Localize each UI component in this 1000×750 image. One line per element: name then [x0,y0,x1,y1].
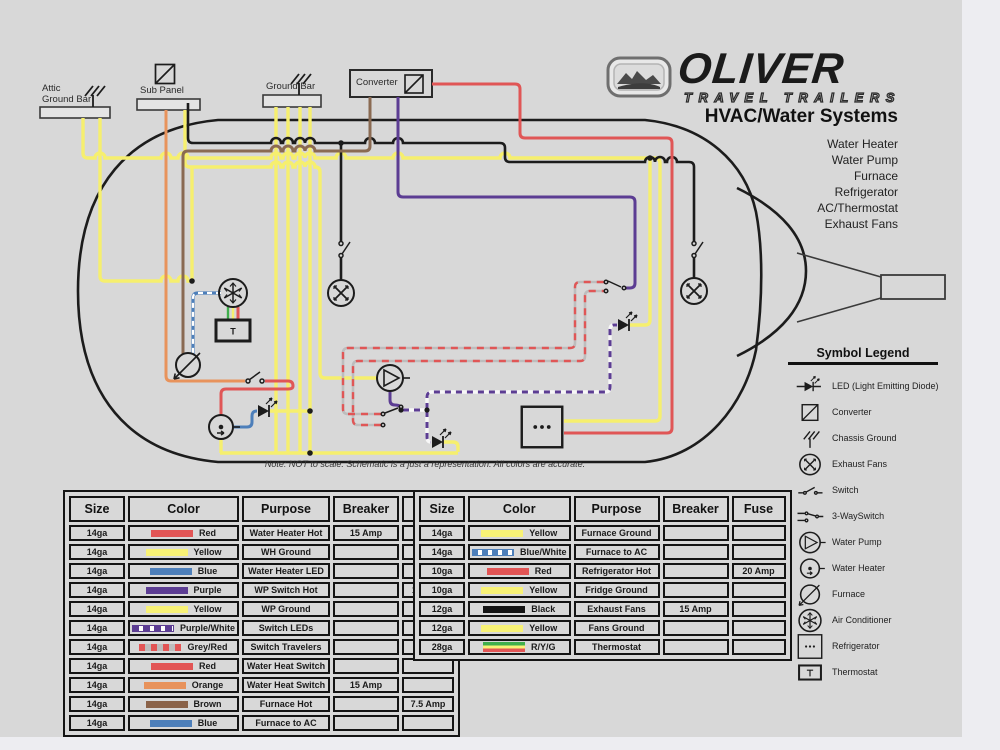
breaker-cell [333,658,399,674]
fuse-cell [732,601,786,617]
thermostat-icon [790,660,830,685]
pump-icon [790,530,830,555]
brand-name: OLIVER [675,45,846,94]
table-row: 14gaYellowWP Ground [69,601,454,617]
purpose-cell: Fans Ground [574,620,660,636]
wire-table-left: SizeColorPurposeBreakerFuse14gaRedWater … [63,490,460,737]
color-cell: Yellow [128,601,239,617]
color-cell: Black [468,601,571,617]
exhaust-fan-icon [681,278,707,304]
wire-color-name: Red [199,661,216,671]
breaker-cell [333,639,399,655]
wire-color-swatch [139,644,181,651]
fuse-cell [402,677,454,693]
wire-color-swatch [146,606,188,613]
size-cell: 12ga [419,601,465,617]
purpose-cell: Switch Travelers [242,639,330,655]
wire-color-swatch [146,549,188,556]
wire-color-name: Yellow [194,547,222,557]
color-cell: Yellow [468,525,571,541]
purpose-cell: Furnace Ground [574,525,660,541]
table-row: 14gaBrownFurnace Hot7.5 Amp [69,696,454,712]
water-pump-icon [377,365,410,391]
wire-color-swatch [150,568,192,575]
attic-ground-bar [40,107,110,118]
breaker-cell: 15 Amp [333,525,399,541]
color-cell: R/Y/G [468,639,571,655]
table-row: 14gaRedWater Heat Switch [69,658,454,674]
legend-divider [788,362,938,365]
purpose-cell: Water Heater LED [242,563,330,579]
breaker-cell [663,563,729,579]
color-cell: Purple/White [128,620,239,636]
table-row: 14gaBlue/WhiteFurnace to AC [419,544,786,560]
breaker-cell [663,582,729,598]
page-title: HVAC/Water Systems [580,106,898,128]
waterheater-icon [790,556,830,581]
wire-color-swatch [132,625,174,632]
legend-item-label: Converter [832,407,872,417]
converter-label: Converter [356,78,398,89]
wire-color-swatch [481,625,523,632]
size-cell: 14ga [69,544,125,560]
size-cell: 28ga [419,639,465,655]
breaker-cell [333,620,399,636]
color-cell: Orange [128,677,239,693]
ground-icon [790,426,830,451]
fuse-cell: 20 Amp [732,563,786,579]
table-row: 28gaR/Y/GThermostat [419,639,786,655]
color-cell: Blue [128,715,239,731]
fuse-cell [732,525,786,541]
color-cell: Yellow [468,582,571,598]
attic-ground-bar-label: Attic Ground Bar [42,84,91,105]
ground-bar [263,95,321,107]
color-cell: Blue/White [468,544,571,560]
breaker-cell [333,582,399,598]
table-row: 14gaBlueFurnace to AC [69,715,454,731]
wire-table-right: SizeColorPurposeBreakerFuse14gaYellowFur… [413,490,792,661]
wire-color-name: Blue/White [520,547,567,557]
size-cell: 14ga [69,639,125,655]
size-cell: 14ga [69,715,125,731]
fridge-icon [790,634,830,659]
led-icon [432,429,451,448]
ground-bar-label: Ground Bar [266,82,315,93]
legend-item: Furnace [788,581,988,607]
purpose-cell: Furnace to AC [242,715,330,731]
wire-color-swatch [146,701,188,708]
wire-color-name: Red [199,528,216,538]
sub-panel-icon [156,65,175,84]
table-row: 14gaRedWater Heater Hot15 Amp [69,525,454,541]
column-header: Breaker [663,496,729,522]
wire-color-name: Yellow [529,585,557,595]
color-cell: Grey/Red [128,639,239,655]
size-cell: 14ga [69,582,125,598]
top-fixtures [40,65,432,119]
purpose-cell: WH Ground [242,544,330,560]
table-row: 14gaYellowFurnace Ground [419,525,786,541]
wire-color-swatch [151,663,193,670]
wire-color-name: Purple/White [180,623,235,633]
size-cell: 10ga [419,563,465,579]
legend-item: Water Pump [788,529,988,555]
breaker-cell [663,544,729,560]
blue-wire-water-heater-led [233,411,257,427]
legend-item: Refrigerator [788,633,988,659]
legend-item-label: Refrigerator [832,641,880,651]
color-cell: Red [128,525,239,541]
legend-item-label: Switch [832,485,859,495]
system-item: Water Heater [580,136,898,152]
column-header: Size [419,496,465,522]
grey-red-wires-switch-travelers [343,282,604,425]
breaker-cell [333,715,399,731]
schematic-sheet: T Attic Ground Bar Sub Panel Ground Bar … [0,0,962,737]
wire-color-name: Purple [194,585,222,595]
table-row: 14gaPurpleWP Switch Hot15 Amp [69,582,454,598]
refrigerator-icon [522,407,563,448]
system-item: Water Pump [580,152,898,168]
led-icon [618,312,637,331]
system-item: Exhaust Fans [580,216,898,232]
color-cell: Purple [128,582,239,598]
breaker-cell [663,639,729,655]
wire-color-swatch [481,530,523,537]
purpose-cell: Furnace to AC [574,544,660,560]
systems-list: Water HeaterWater PumpFurnaceRefrigerato… [580,136,898,232]
purpose-cell: Fridge Ground [574,582,660,598]
breaker-cell [333,563,399,579]
column-header: Purpose [242,496,330,522]
purpose-cell: Refrigerator Hot [574,563,660,579]
wire-color-name: Yellow [194,604,222,614]
led-icon [258,398,277,417]
color-cell: Yellow [468,620,571,636]
symbol-legend: Symbol Legend LED (Light Emitting Diode)… [788,346,988,685]
wire-color-swatch [487,568,529,575]
wire-color-name: Yellow [529,528,557,538]
logo-emblem [606,56,672,103]
water-heater-icon [209,415,240,439]
legend-item: Converter [788,399,988,425]
table-row: 14gaGrey/RedSwitch Travelers [69,639,454,655]
wire-color-swatch [151,530,193,537]
size-cell: 14ga [419,525,465,541]
wire-color-swatch [483,642,525,652]
purpose-cell: Water Heater Hot [242,525,330,541]
legend-item: Chassis Ground [788,425,988,451]
breaker-cell: 15 Amp [333,677,399,693]
color-cell: Brown [128,696,239,712]
purpose-cell: WP Ground [242,601,330,617]
size-cell: 14ga [69,563,125,579]
wire-color-swatch [150,720,192,727]
page: T Attic Ground Bar Sub Panel Ground Bar … [0,0,1000,750]
brand-tagline: TRAVEL TRAILERS [684,90,901,105]
system-item: Furnace [580,168,898,184]
breaker-cell [663,525,729,541]
legend-item-label: Exhaust Fans [832,459,887,469]
fuse-cell [732,620,786,636]
legend-item-label: Air Conditioner [832,615,892,625]
column-header: Size [69,496,125,522]
ryg-wires-thermostat [228,307,238,320]
wire-color-name: Black [531,604,555,614]
table-row: 12gaBlackExhaust Fans15 Amp [419,601,786,617]
breaker-cell [333,696,399,712]
system-item: Refrigerator [580,184,898,200]
size-cell: 12ga [419,620,465,636]
table-row: 14gaOrangeWater Heat Switch15 Amp [69,677,454,693]
legend-item-label: Thermostat [832,667,878,677]
legend-item: LED (Light Emitting Diode) [788,373,988,399]
wire-color-swatch [146,587,188,594]
table-row: 10gaRedRefrigerator Hot20 Amp [419,563,786,579]
furnace-icon [790,582,830,607]
purpose-cell: Switch LEDs [242,620,330,636]
legend-item: 3-WaySwitch [788,503,988,529]
wire-color-swatch [472,549,514,556]
legend-item-label: Chassis Ground [832,433,897,443]
wire-color-swatch [481,587,523,594]
size-cell: 14ga [69,525,125,541]
converter-icon [790,400,830,425]
hitch-box [881,275,945,299]
exhaust-fan-icon [328,280,354,306]
fan-icon [790,452,830,477]
table-row: 10gaYellowFridge Ground [419,582,786,598]
note-text: Note: NOT to scale. Schematic is a just … [195,459,655,469]
wire-color-name: Brown [194,699,222,709]
fuse-cell: 7.5 Amp [402,696,454,712]
size-cell: 14ga [69,601,125,617]
column-header: Purpose [574,496,660,522]
purpose-cell: Exhaust Fans [574,601,660,617]
breaker-cell: 15 Amp [663,601,729,617]
fuse-cell [732,639,786,655]
thermostat-label: T [230,327,236,337]
size-cell: 10ga [419,582,465,598]
size-cell: 14ga [419,544,465,560]
size-cell: 14ga [69,620,125,636]
column-header: Breaker [333,496,399,522]
size-cell: 14ga [69,677,125,693]
furnace-icon [174,353,200,379]
legend-item-label: Water Pump [832,537,882,547]
sub-panel-bar [137,99,200,110]
wire-color-name: Blue [198,566,218,576]
legend-item: Thermostat [788,659,988,685]
legend-title: Symbol Legend [788,346,938,360]
column-header: Color [128,496,239,522]
legend-item-label: Furnace [832,589,865,599]
color-cell: Blue [128,563,239,579]
purpose-cell: Water Heat Switch [242,677,330,693]
breaker-cell [663,620,729,636]
wire-color-name: Yellow [529,623,557,633]
purpose-cell: Thermostat [574,639,660,655]
legend-item: Water Heater [788,555,988,581]
purpose-cell: Water Heat Switch [242,658,330,674]
table-row: 14gaPurple/WhiteSwitch LEDs [69,620,454,636]
system-item: AC/Thermostat [580,200,898,216]
wire-color-name: R/Y/G [531,642,556,652]
converter-icon [405,75,423,93]
color-cell: Red [468,563,571,579]
ac-icon [790,608,830,633]
column-header: Fuse [732,496,786,522]
legend-item: Exhaust Fans [788,451,988,477]
purpose-cell: WP Switch Hot [242,582,330,598]
size-cell: 14ga [69,696,125,712]
legend-item: Switch [788,477,988,503]
air-conditioner-icon [219,279,247,307]
wire-color-name: Blue [198,718,218,728]
table-row: 14gaYellowWH Ground [69,544,454,560]
color-cell: Yellow [128,544,239,560]
wire-color-name: Red [535,566,552,576]
legend-item-label: LED (Light Emitting Diode) [832,381,939,391]
color-cell: Red [128,658,239,674]
legend-item-label: Water Heater [832,563,885,573]
led-icon [790,374,830,399]
fuse-cell [402,715,454,731]
table-row: 14gaBlueWater Heater LED [69,563,454,579]
table-row: 12gaYellowFans Ground [419,620,786,636]
wire-color-swatch [144,682,186,689]
switch-icon [790,478,830,503]
yellow-wires [83,107,660,453]
breaker-cell [333,601,399,617]
trailer-emblem-icon [606,56,672,98]
purpose-cell: Furnace Hot [242,696,330,712]
breaker-cell [333,544,399,560]
wire-color-name: Orange [192,680,224,690]
column-header: Color [468,496,571,522]
threeway-icon [790,504,830,529]
legend-item: Air Conditioner [788,607,988,633]
legend-item-label: 3-WaySwitch [832,511,884,521]
fuse-cell [732,582,786,598]
size-cell: 14ga [69,658,125,674]
sub-panel-label: Sub Panel [140,86,184,97]
wire-color-swatch [483,606,525,613]
wire-color-name: Grey/Red [187,642,227,652]
fuse-cell [732,544,786,560]
